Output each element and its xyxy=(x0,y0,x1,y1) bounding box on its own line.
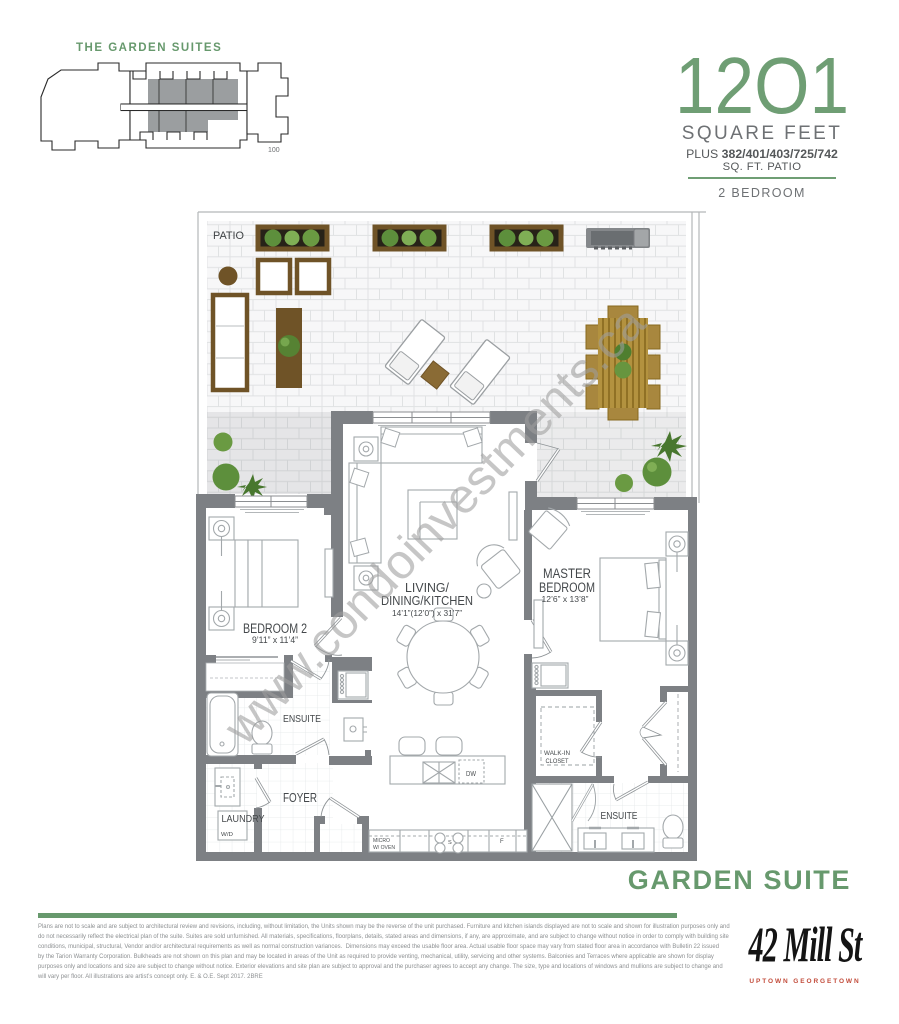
svg-text:W/ OVEN: W/ OVEN xyxy=(373,845,395,851)
svg-text:W/D: W/D xyxy=(221,832,233,838)
svg-text:FOYER: FOYER xyxy=(283,791,317,805)
svg-text:PATIO: PATIO xyxy=(213,230,244,242)
svg-text:MASTER: MASTER xyxy=(543,566,591,581)
svg-text:F: F xyxy=(500,839,504,845)
svg-text:14’1”(12’0”) x 31’7”: 14’1”(12’0”) x 31’7” xyxy=(392,608,462,618)
svg-text:WALK-IN: WALK-IN xyxy=(544,750,570,757)
svg-text:LAUNDRY: LAUNDRY xyxy=(222,813,265,825)
svg-text:CLOSET: CLOSET xyxy=(546,758,569,765)
svg-text:12’6” x 13’8”: 12’6” x 13’8” xyxy=(542,594,589,604)
svg-text:MICRO: MICRO xyxy=(373,838,391,844)
svg-text:ENSUITE: ENSUITE xyxy=(601,810,638,822)
svg-text:S: S xyxy=(448,840,452,846)
svg-text:BEDROOM: BEDROOM xyxy=(539,580,595,595)
svg-text:DW: DW xyxy=(466,771,476,778)
